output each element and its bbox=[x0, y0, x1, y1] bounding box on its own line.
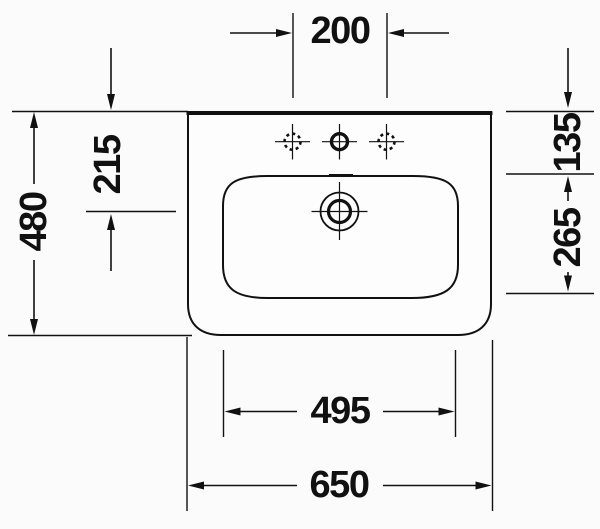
arrow-265-down bbox=[564, 276, 572, 292]
arrow-495-left bbox=[225, 408, 241, 416]
arrow-215-down bbox=[107, 94, 115, 110]
arrow-495-right bbox=[439, 408, 455, 416]
arrow-480-up bbox=[30, 112, 38, 128]
arrow-650-left bbox=[188, 482, 204, 490]
drawing-canvas bbox=[0, 0, 600, 529]
dim-label-tap-hole-spacing: 200 bbox=[311, 12, 370, 50]
arrow-480-down bbox=[30, 319, 38, 335]
arrow-135-down bbox=[564, 92, 572, 108]
dim-label-basin-inner-width: 495 bbox=[311, 392, 370, 430]
dim-label-overall-width: 650 bbox=[310, 466, 369, 504]
arrow-200-right bbox=[388, 29, 404, 37]
arrow-135-up bbox=[564, 176, 572, 192]
arrow-650-right bbox=[476, 482, 492, 490]
arrow-200-left bbox=[276, 29, 292, 37]
arrow-215-up bbox=[107, 214, 115, 230]
dim-label-overall-depth: 480 bbox=[15, 193, 53, 252]
dim-label-basin-inner-depth: 265 bbox=[549, 209, 587, 268]
dim-label-back-edge-to-basin: 135 bbox=[549, 114, 587, 173]
washbasin-dimension-drawing: 200 215 480 135 265 495 650 bbox=[0, 0, 600, 529]
dim-label-back-edge-to-drain: 215 bbox=[89, 136, 127, 195]
